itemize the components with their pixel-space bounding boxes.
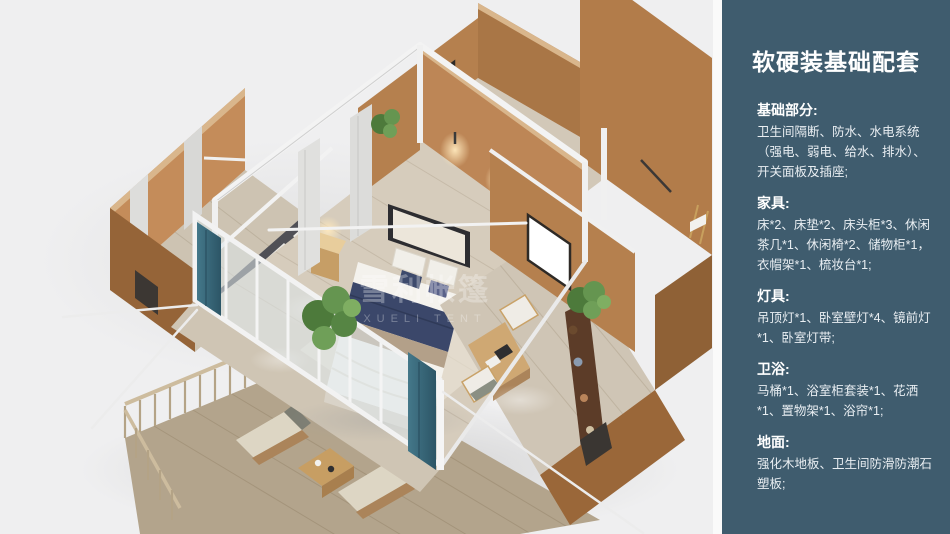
render-canvas: 雪利帐篷 XUELI TENT [0,0,713,534]
section-body: 马桶*1、浴室柜套装*1、花洒*1、置物架*1、浴帘*1; [757,381,936,421]
section-lighting: 灯具: 吊顶灯*1、卧室壁灯*4、镜前灯*1、卧室灯带; [757,286,936,348]
curtain [298,138,320,276]
teal-curtain [408,352,436,470]
section-heading: 灯具: [757,286,936,306]
section-body: 卫生间隔断、防水、水电系统（强电、弱电、给水、排水）、开关面板及插座; [757,122,936,182]
section-body: 强化木地板、卫生间防滑防潮石塑板; [757,454,936,494]
section-heading: 家具: [757,193,936,213]
watermark-en: XUELI TENT [363,313,486,325]
section-heading: 地面: [757,432,936,452]
section-flooring: 地面: 强化木地板、卫生间防滑防潮石塑板; [757,432,936,494]
section-bathroom: 卫浴: 马桶*1、浴室柜套装*1、花洒*1、置物架*1、浴帘*1; [757,359,936,421]
section-basics: 基础部分: 卫生间隔断、防水、水电系统（强电、弱电、给水、排水）、开关面板及插座… [757,100,936,182]
sidebar-title: 软硬装基础配套 [730,48,942,76]
section-furniture: 家具: 床*2、床垫*2、床头柜*3、休闲茶几*1、休闲椅*2、储物柜*1，衣帽… [757,193,936,275]
xueli-watermark: 雪利帐篷 XUELI TENT [359,274,491,325]
spec-sidebar: 软硬装基础配套 基础部分: 卫生间隔断、防水、水电系统（强电、弱电、给水、排水）… [722,0,950,534]
sidebar-sections: 基础部分: 卫生间隔断、防水、水电系统（强电、弱电、给水、排水）、开关面板及插座… [722,76,950,494]
upper-right-wall [580,0,712,255]
section-heading: 卫浴: [757,359,936,379]
floorplan-render: 雪利帐篷 XUELI TENT [0,0,713,534]
section-heading: 基础部分: [757,100,936,120]
watermark-cn: 雪利帐篷 [359,274,491,307]
curtain [350,104,372,242]
section-body: 吊顶灯*1、卧室壁灯*4、镜前灯*1、卧室灯带; [757,308,936,348]
section-body: 床*2、床垫*2、床头柜*3、休闲茶几*1、休闲椅*2、储物柜*1，衣帽架*1、… [757,215,936,275]
panel-divider [713,0,722,534]
teal-curtain [197,222,221,316]
